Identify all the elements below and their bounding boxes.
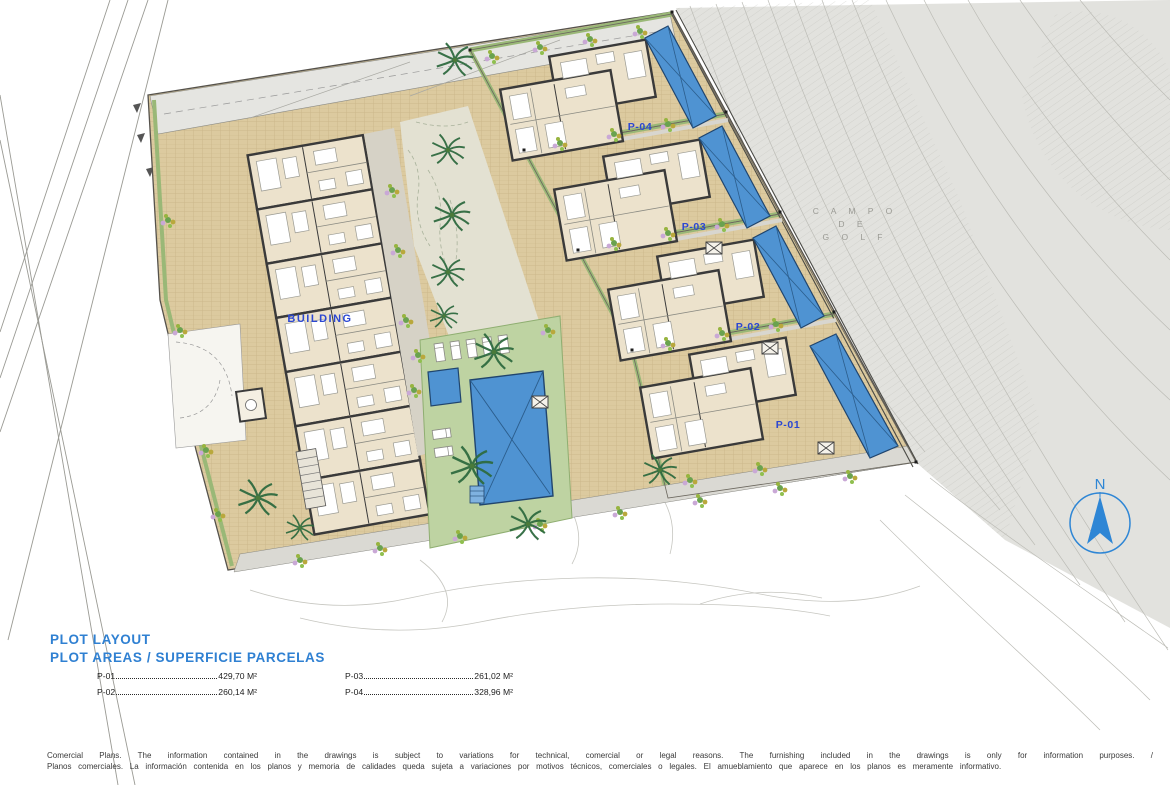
svg-text:D E: D E	[838, 219, 867, 229]
plot-label-p03: P-03	[682, 221, 707, 233]
plot-area-value: 260,14 M²	[218, 687, 257, 697]
plot-area-value: 328,96 M²	[474, 687, 513, 697]
service-box-icon	[818, 442, 834, 454]
plot-layout-page: C A M P O D E G O L F	[0, 0, 1170, 785]
plot-label-p02: P-02	[736, 321, 761, 333]
disclaimer-text-en: Comercial Plans. The information contain…	[47, 751, 1153, 762]
plot-area-label: P-02	[97, 687, 115, 697]
service-box-icon	[532, 396, 548, 408]
plot-area-label: P-03	[345, 671, 363, 681]
plot-label-p01: P-01	[776, 419, 801, 431]
plot-label-p04: P-04	[628, 121, 653, 133]
legend: PLOT LAYOUT PLOT AREAS / SUPERFICIE PARC…	[50, 631, 610, 667]
disclaimer-text-es: Planos comerciales. La información conte…	[47, 762, 1153, 773]
plot-area-label: P-01	[97, 671, 115, 681]
communal-pool	[470, 371, 553, 505]
service-box-icon	[762, 342, 778, 354]
dotted-leader	[364, 693, 473, 695]
dotted-leader	[116, 693, 217, 695]
plot-area-row: P-02 260,14 M²	[97, 687, 257, 697]
plot-areas-table: P-01 429,70 M² P-02 260,14 M² P-03 261,0…	[97, 671, 567, 707]
dotted-leader	[364, 677, 473, 679]
site-plan-drawing: C A M P O D E G O L F	[0, 0, 1170, 785]
plot-area-value: 429,70 M²	[218, 671, 257, 681]
svg-text:G O L F: G O L F	[823, 232, 888, 242]
plot-area-value: 261,02 M²	[474, 671, 513, 681]
legend-subtitle: PLOT AREAS / SUPERFICIE PARCELAS	[50, 649, 610, 667]
plot-area-label: P-04	[345, 687, 363, 697]
service-box-icon	[706, 242, 722, 254]
building-label: BUILDING	[287, 313, 352, 325]
plot-area-row: P-01 429,70 M²	[97, 671, 257, 681]
svg-text:C A M P O: C A M P O	[813, 206, 898, 216]
plot-area-row: P-04 328,96 M²	[345, 687, 513, 697]
disclaimer: Comercial Plans. The information contain…	[47, 751, 1153, 772]
communal-pool-small	[428, 368, 461, 406]
north-label: N	[1095, 476, 1106, 493]
dotted-leader	[116, 677, 217, 679]
pool-steps	[470, 486, 484, 503]
plot-area-row: P-03 261,02 M²	[345, 671, 513, 681]
legend-title: PLOT LAYOUT	[50, 631, 610, 649]
